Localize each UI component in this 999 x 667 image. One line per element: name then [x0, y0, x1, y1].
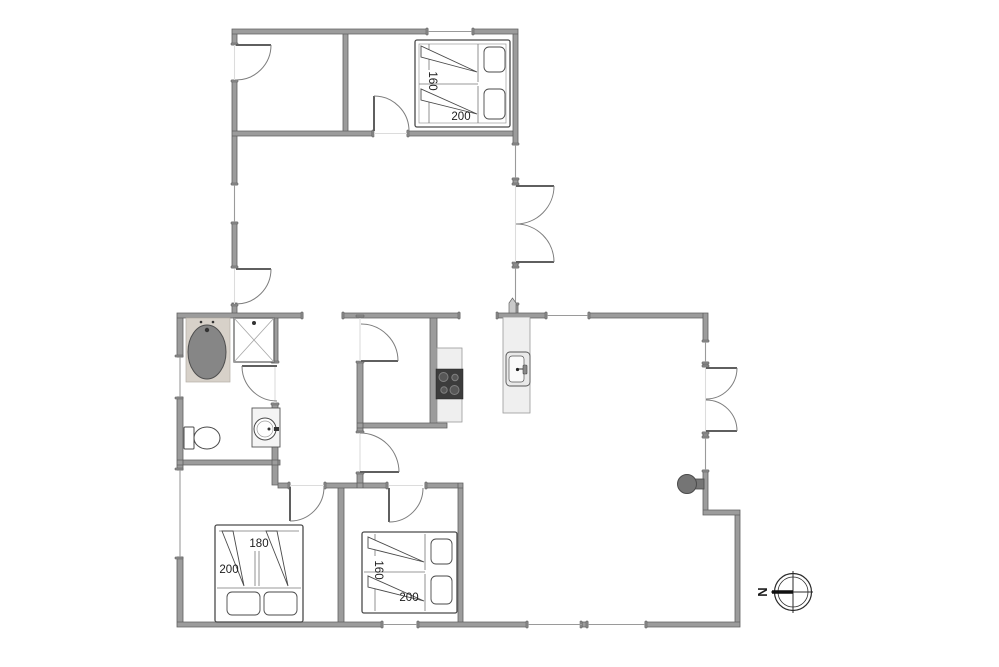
bed-left-pillow-2 — [264, 592, 297, 615]
wood-stove — [678, 475, 705, 494]
compass-north-label: N — [755, 587, 770, 596]
bed-left-pillow-1 — [227, 592, 260, 615]
bed-top-width-label: 160 — [426, 71, 438, 90]
bed-top-pillow-2 — [484, 89, 505, 119]
bed-middle: 160 200 — [362, 532, 457, 613]
bed-left-length-label: 200 — [219, 564, 238, 576]
cooktop-burner-2 — [452, 374, 458, 380]
cooktop-burner-3 — [441, 387, 447, 393]
island-faucet — [523, 365, 527, 374]
cooktop-burner-4 — [450, 386, 459, 395]
compass: N — [755, 571, 813, 613]
shower-head-icon — [252, 321, 256, 325]
bathroom — [184, 318, 280, 449]
bed-middle-pillow-2 — [431, 576, 452, 604]
cooktop-burner-1 — [439, 373, 448, 382]
bed-middle-width-label: 160 — [372, 560, 384, 579]
wood-stove-body — [678, 475, 697, 494]
bed-top-pillow-1 — [484, 47, 505, 72]
bed-middle-length-label: 200 — [399, 592, 418, 604]
island-faucet-dot — [516, 368, 519, 371]
toilet-bowl — [194, 427, 220, 449]
washbasin-faucet-icon — [274, 427, 279, 431]
toilet-tank — [184, 427, 194, 449]
bed-left-width-label: 180 — [249, 538, 268, 550]
floor-plan-drawing: 160 200 — [0, 0, 999, 667]
bathtub — [188, 325, 226, 379]
bed-middle-pillow-1 — [431, 539, 452, 564]
bathtub-handle-right-icon — [212, 321, 215, 324]
bathtub-handle-left-icon — [200, 321, 203, 324]
floor-plan-page: 160 200 — [0, 0, 999, 667]
bed-top-length-label: 200 — [451, 111, 470, 123]
bathtub-faucet-icon — [205, 328, 209, 332]
washbasin-drain-icon — [268, 428, 271, 431]
bed-left: 180 200 — [215, 525, 303, 622]
bed-top: 160 200 — [415, 40, 510, 127]
